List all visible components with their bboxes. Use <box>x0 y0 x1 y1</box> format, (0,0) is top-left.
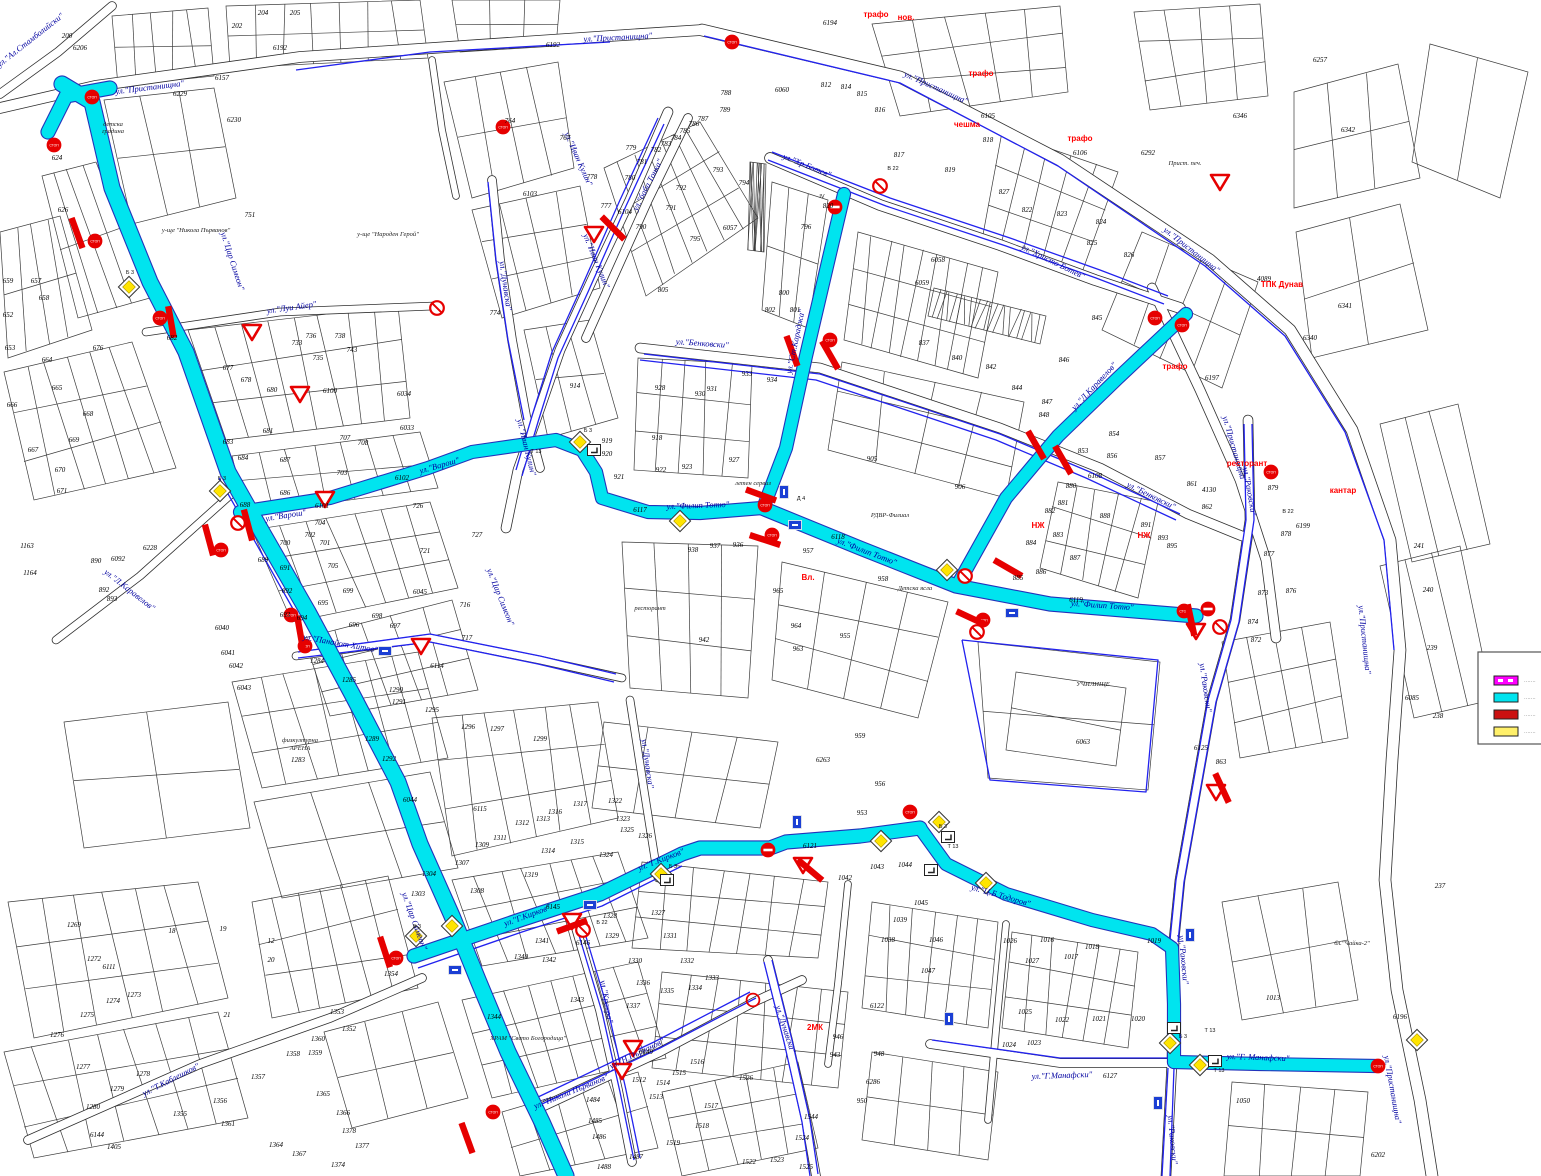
parcel-number-label: 6145 <box>546 903 561 911</box>
parcel-number-label: 1488 <box>597 1163 612 1171</box>
parcel-line <box>715 1080 738 1165</box>
red-annotation-label: чешма <box>954 120 981 129</box>
parcel-number-label: 1272 <box>87 955 102 963</box>
parcel-number-label: 1332 <box>680 957 695 965</box>
parcel-number-label: 1307 <box>455 859 470 867</box>
parcel-line <box>1046 939 1052 1035</box>
parcel-line <box>272 898 300 1013</box>
parcel-number-label: 1013 <box>1266 994 1281 1002</box>
parcel-line <box>462 715 477 849</box>
parcel-number-label: 1047 <box>921 967 936 975</box>
parcel-line <box>983 711 1154 725</box>
parcel-number-label: 695 <box>318 599 329 607</box>
poi-label: АРЕНА <box>289 745 311 752</box>
red-annotation-label: трафо <box>863 10 888 19</box>
parcel-number-label: 872 <box>1251 636 1262 644</box>
parcel-number-label: 1027 <box>1025 957 1040 965</box>
route-casing <box>762 508 1196 616</box>
parcel-number-label: 1324 <box>599 851 614 859</box>
parcel-number-label: 653 <box>5 344 16 352</box>
parcel-line <box>654 543 662 691</box>
info-sign-marker <box>379 647 392 656</box>
parcel-number-label: 6119 <box>1069 596 1083 604</box>
parcel-number-label: 891 <box>1141 521 1152 529</box>
parcel-line <box>637 393 751 405</box>
parcel-number-label: 857 <box>1155 454 1166 462</box>
parcel-number-label: 1290 <box>389 686 404 694</box>
parcel-number-label: 6341 <box>1338 302 1352 310</box>
sign-code-label: Т 13 <box>1204 1028 1215 1034</box>
parcel-number-label: 886 <box>1036 568 1047 576</box>
parcel-number-label: 6122 <box>870 1002 885 1010</box>
parcel-number-label: 6194 <box>823 19 838 27</box>
parcel-number-label: 948 <box>874 1050 885 1058</box>
red-annotation-label: 2МК <box>807 1023 823 1032</box>
parcel-number-label: 918 <box>652 434 663 442</box>
parcel-line <box>67 357 105 484</box>
parcel-line <box>779 605 938 637</box>
parcel-number-label: 6192 <box>273 44 288 52</box>
parcel-number-label: 1516 <box>690 1058 705 1066</box>
parcel-number-label: 705 <box>328 562 339 570</box>
info-sign-marker <box>584 901 597 910</box>
parcel-number-label: 18 <box>169 927 177 935</box>
parcel-line <box>993 305 1004 333</box>
parcel-number-label: 1358 <box>286 1050 301 1058</box>
parcel-number-label: 6101 <box>315 502 329 510</box>
parcel-number-label: 937 <box>710 542 721 550</box>
parcel-number-label: 1336 <box>636 979 651 987</box>
parcel-line <box>687 868 694 951</box>
parcel-number-label: 6111 <box>103 963 116 971</box>
parcel-number-label: 1523 <box>770 1156 785 1164</box>
parcel-line <box>963 268 983 374</box>
parcel-number-label: 1322 <box>608 797 623 805</box>
parcel-line <box>1008 308 1010 336</box>
parcel-number-label: 874 <box>1248 618 1259 626</box>
city-map-canvas[interactable]: СТОПСТОПСТОПСТОПСТОПСТОПСТОПСТОПСТОПСТОП… <box>0 0 1541 1176</box>
parcel-number-label: 677 <box>223 364 234 372</box>
parcel-number-label: 698 <box>372 612 383 620</box>
map-viewport[interactable]: СТОПСТОПСТОПСТОПСТОПСТОПСТОПСТОПСТОПСТОП… <box>0 0 1541 1176</box>
parcel-number-label: 6121 <box>803 842 817 850</box>
parcel-number-label: 6125 <box>1194 744 1209 752</box>
parcel-number-label: 1334 <box>688 984 703 992</box>
parcel-number-label: 890 <box>91 557 102 565</box>
parcel-number-label: 681 <box>263 427 274 435</box>
info-sign-marker <box>793 816 802 829</box>
parcel-number-label: 687 <box>280 456 291 464</box>
parcel-number-label: 1024 <box>1002 1041 1017 1049</box>
parcel-number-label: 1331 <box>663 932 677 940</box>
poi-label: у-ще "Народен Герой" <box>356 231 419 238</box>
parcel-number-label: 239 <box>1427 644 1438 652</box>
red-annotation-label: НЖ <box>1137 531 1151 540</box>
parcel-number-label: 6346 <box>1233 112 1248 120</box>
sign-code-label: Б 3 <box>1179 1034 1187 1040</box>
parcel-number-label: 6041 <box>221 649 235 657</box>
parcel-line <box>228 30 424 36</box>
parcel-number-label: 736 <box>306 332 317 340</box>
traffic-markers: СТОПСТОПСТОПСТОПСТОПСТОПСТОПСТОПСТОПСТОП… <box>47 35 1428 1155</box>
svg-text:СТОП: СТОП <box>488 1110 498 1114</box>
parcel-line <box>1230 6 1238 100</box>
info-sign-marker <box>945 1013 954 1026</box>
parcel-line <box>975 301 988 329</box>
sign-code-label: Б 3 <box>669 864 677 870</box>
poi-label: ХРАМ "Свето Богородица" <box>489 1035 566 1042</box>
parcel-line <box>688 544 691 693</box>
sign-code-label: В 22 <box>1282 509 1293 515</box>
poi-label: Детска ясла <box>897 585 932 592</box>
parcel-number-label: 6192 <box>546 41 561 49</box>
parcel-number-label: 876 <box>1286 587 1297 595</box>
parcel-number-label: 862 <box>1202 503 1213 511</box>
stop-sign-marker: СТОП <box>88 234 103 249</box>
parcel-number-label: 1050 <box>1236 1097 1251 1105</box>
parcel-number-label: 743 <box>347 346 358 354</box>
parcel-number-label: 684 <box>238 454 249 462</box>
parcel-number-label: 824 <box>1096 218 1107 226</box>
parcel-number-label: 1341 <box>535 937 549 945</box>
parcel-number-label: 6340 <box>1303 334 1318 342</box>
poi-label: РДВР-Филиал <box>870 512 909 519</box>
stop-sign-marker: СТОП <box>1148 311 1163 326</box>
parcel-line <box>767 246 818 264</box>
parcel-number-label: 6034 <box>397 390 412 398</box>
svg-text:СТОП: СТОП <box>49 143 59 147</box>
parcel-line <box>74 769 239 780</box>
parcel-number-label: 701 <box>320 539 331 547</box>
parcel-number-label: 1299 <box>533 735 548 743</box>
parcel-line <box>1009 309 1022 337</box>
parcel-number-label: 6085 <box>1405 694 1420 702</box>
parcel-number-label: 958 <box>878 575 889 583</box>
parcel-number-label: 6105 <box>981 112 996 120</box>
parcel-number-label: 786 <box>689 120 700 128</box>
parcel-number-label: 881 <box>1058 499 1069 507</box>
parcel-number-label: 1325 <box>620 826 635 834</box>
yield-sign-marker <box>1211 175 1229 190</box>
parcel-number-label: 959 <box>855 732 866 740</box>
parcel-number-label: 707 <box>340 434 351 442</box>
poi-label: детска <box>103 121 123 128</box>
parcel-line <box>1325 1090 1335 1176</box>
parcel-number-label: 848 <box>1039 411 1050 419</box>
direction-sign-marker <box>925 865 938 876</box>
parcel-number-label: 20 <box>268 956 276 964</box>
poi-label: летен сервиз <box>734 480 771 487</box>
parcel-line <box>1259 1085 1264 1176</box>
parcel-line <box>715 737 737 823</box>
yield-sign-marker <box>243 325 261 340</box>
parcel-line <box>69 1041 92 1147</box>
red-annotation-label: НЖ <box>1031 521 1045 530</box>
parcel-number-label: 1525 <box>799 1163 814 1171</box>
parcel-line <box>1247 637 1270 753</box>
parcel-number-label: 1328 <box>603 912 618 920</box>
parcel-number-label: 682 <box>167 334 178 342</box>
red-annotation-label: трафо <box>968 69 993 78</box>
parcel-block-outline <box>872 6 1068 116</box>
parcel-number-label: 837 <box>919 339 930 347</box>
street-name-label: ул."Ал.Стамболийски" <box>0 10 66 69</box>
parcel-number-label: 6104 <box>618 208 633 216</box>
poi-label: УЧИЛИЩЕ <box>1076 681 1109 688</box>
parcel-number-label: 6286 <box>866 1078 881 1086</box>
street-name-label: ул."Никола Първанов" <box>531 1072 610 1112</box>
parcel-number-label: 669 <box>69 436 80 444</box>
parcel-number-label: 1374 <box>331 1161 346 1169</box>
no-stopping-sign-marker <box>1213 620 1227 634</box>
parcel-number-label: 781 <box>637 158 648 166</box>
parcel-number-label: 885 <box>1013 574 1024 582</box>
svg-text:СТОП: СТОП <box>825 338 835 342</box>
parcel-line <box>811 989 821 1085</box>
info-sign-marker <box>1154 1097 1163 1110</box>
parcel-line <box>132 14 136 84</box>
parcel-number-label: 895 <box>1167 542 1178 550</box>
parcel-number-label: 6263 <box>816 756 831 764</box>
parcel-number-label: 6114 <box>430 662 444 670</box>
parcel-number-label: 6092 <box>111 555 126 563</box>
parcel-number-label: 1315 <box>570 838 585 846</box>
parcel-line <box>261 678 285 784</box>
legend-swatch <box>1494 727 1518 736</box>
parcel-line <box>807 572 824 690</box>
parcel-number-label: 879 <box>1268 484 1279 492</box>
svg-text:СТОП: СТОП <box>498 125 508 129</box>
street-name-label: ул."Цар Симеон" <box>484 566 517 627</box>
parcel-number-label: 716 <box>460 601 471 609</box>
parcel-number-label: 21 <box>224 1011 231 1019</box>
poi-label: у-ще "Никола Първанов" <box>161 227 231 234</box>
parcel-number-label: 1279 <box>110 1085 125 1093</box>
parcel-number-label: 1312 <box>515 819 530 827</box>
parcel-line <box>25 963 218 989</box>
parcel-number-label: 847 <box>1042 398 1053 406</box>
parcel-number-label: 1284 <box>310 657 325 665</box>
parcel-number-label: 1273 <box>127 991 142 999</box>
parcel-number-label: 680 <box>267 386 278 394</box>
parcel-number-label: 1045 <box>914 899 929 907</box>
parcel-number-label: 787 <box>698 115 709 123</box>
parcel-number-label: 1291 <box>392 698 406 706</box>
svg-text:СТОП: СТОП <box>767 533 777 537</box>
parcel-line <box>439 744 605 760</box>
legend-item-label: ······· <box>1524 713 1536 719</box>
parcel-line <box>947 292 949 320</box>
parcel-number-label: 943 <box>830 1051 841 1059</box>
parcel-number-label: 1296 <box>461 723 476 731</box>
parcel-number-label: 1367 <box>292 1150 307 1158</box>
parcel-number-label: 1329 <box>605 932 620 940</box>
parcel-line <box>1228 1126 1364 1138</box>
parcel-number-label: 923 <box>682 463 693 471</box>
parcel-number-label: 1354 <box>384 970 399 978</box>
parcel-number-label: 6342 <box>1341 126 1356 134</box>
parcel-number-label: 733 <box>292 339 303 347</box>
parcel-number-label: 780 <box>625 174 636 182</box>
parcel-line <box>252 722 438 753</box>
parcel-line <box>1431 553 1467 706</box>
parcel-number-label: 1518 <box>695 1122 710 1130</box>
sign-code-label: Т 13 <box>947 844 958 850</box>
svg-text:СТОП: СТОП <box>1177 323 1187 327</box>
poi-label: градина <box>102 128 124 135</box>
parcel-number-label: 1020 <box>1131 1015 1146 1023</box>
sign-code-label: Б 3 <box>939 824 947 830</box>
parcel-line <box>949 294 957 322</box>
parcel-line <box>1429 411 1467 550</box>
parcel-number-label: 694 <box>297 614 308 622</box>
parcel-number-label: 697 <box>390 622 401 630</box>
parcel-number-label: 1366 <box>336 1109 351 1117</box>
parcel-number-label: 708 <box>358 439 369 447</box>
parcel-number-label: 200 <box>62 32 73 40</box>
parcel-number-label: 863 <box>1216 758 1227 766</box>
parcel-line <box>598 766 769 784</box>
parcel-line <box>1274 632 1296 748</box>
svg-text:СТОП: СТОП <box>87 95 97 99</box>
parcel-number-label: 887 <box>1070 554 1081 562</box>
parcel-number-label: 1333 <box>705 974 720 982</box>
parcel-number-label: 873 <box>1258 589 1269 597</box>
parcel-number-label: 819 <box>945 166 956 174</box>
parcel-block-outline <box>4 342 176 500</box>
red-annotation-label: трафо <box>1067 134 1092 143</box>
parcel-number-label: 888 <box>1100 512 1111 520</box>
parcel-line <box>118 147 225 159</box>
street-name-label: ул."Г.Манафски" <box>1030 1069 1092 1081</box>
route-segment <box>764 194 844 506</box>
parcel-line <box>338 1052 453 1077</box>
parcel-number-label: 1297 <box>490 725 505 733</box>
parcel-number-label: 1512 <box>632 1076 647 1084</box>
sign-code-label: Т 13 <box>1213 1068 1224 1074</box>
parcel-number-label: 6045 <box>413 588 428 596</box>
parcel-number-label: 704 <box>315 519 326 527</box>
poi-label: ресторант <box>633 605 666 612</box>
parcel-line <box>678 360 685 473</box>
route-casing <box>958 314 1186 584</box>
parcel-number-label: 965 <box>773 587 784 595</box>
parcel-number-label: 1042 <box>838 874 853 882</box>
parcel-number-label: 1274 <box>106 997 121 1005</box>
sign-code-label: Б 3 <box>584 428 592 434</box>
parcel-line <box>625 588 755 599</box>
parcel-number-label: 1304 <box>422 870 437 878</box>
parcel-number-label: 942 <box>699 636 710 644</box>
street-name-label: ул."Пристанищна" <box>1356 604 1373 675</box>
stop-sign-marker: СТОП <box>1175 318 1190 333</box>
parcel-number-label: 1337 <box>626 1002 641 1010</box>
blue-guide-line <box>962 640 1158 792</box>
parcel-number-label: 1313 <box>536 815 551 823</box>
parcel-number-label: 853 <box>1078 447 1089 455</box>
parcel-number-label: 774 <box>490 309 501 317</box>
svg-text:СТОП: СТОП <box>1266 470 1276 474</box>
parcel-line <box>213 381 406 402</box>
no-stopping-sign-marker <box>873 179 887 193</box>
parcel-number-label: 1517 <box>704 1102 719 1110</box>
info-sign-marker <box>780 486 789 499</box>
parcel-number-label: 1163 <box>20 542 34 550</box>
parcel-number-label: 795 <box>690 235 701 243</box>
parcel-number-label: 6059 <box>915 279 930 287</box>
parcel-number-label: 1323 <box>616 815 631 823</box>
parcel-number-label: 884 <box>1026 539 1037 547</box>
direction-sign-marker <box>942 832 955 843</box>
yield-sign-marker <box>291 387 309 402</box>
parcel-number-label: 861 <box>1187 480 1198 488</box>
parcel-number-label: 1524 <box>795 1134 810 1142</box>
parcel-number-label: 6057 <box>723 224 738 232</box>
parcel-line <box>179 92 199 207</box>
parcel-number-label: 805 <box>658 286 669 294</box>
road-surface <box>28 978 422 1140</box>
parcel-number-label: 782 <box>651 146 662 154</box>
parcel-number-label: 784 <box>671 134 682 142</box>
parcel-number-label: 1361 <box>221 1120 235 1128</box>
parcel-number-label: 1026 <box>1003 937 1018 945</box>
sign-code-label: IV <box>819 194 825 200</box>
parcel-line <box>844 582 867 699</box>
svg-text:СТОП: СТОП <box>90 239 100 243</box>
parcel-number-label: 906 <box>955 483 966 491</box>
parcel-number-label: 700 <box>280 539 291 547</box>
parcel-number-label: 820 <box>823 202 834 210</box>
road-surface <box>768 960 816 1176</box>
parcel-number-label: 777 <box>601 202 612 210</box>
parcel-number-label: 683 <box>223 438 234 446</box>
parcel-line <box>944 915 957 1021</box>
parcel-line <box>1083 490 1095 580</box>
parcel-number-label: 657 <box>31 277 42 285</box>
parcel-number-label: 1044 <box>898 861 913 869</box>
parcel-line <box>556 192 572 296</box>
parcel-number-label: 963 <box>793 645 804 653</box>
parcel-line <box>265 532 439 559</box>
parcel-number-label: 1022 <box>1055 1016 1070 1024</box>
route-segment <box>762 508 1196 616</box>
parcel-number-label: 1544 <box>804 1113 819 1121</box>
parcel-number-label: 6292 <box>1141 149 1156 157</box>
parcel-block-outline <box>432 702 618 856</box>
parcel-number-label: 1405 <box>107 1143 122 1151</box>
parcel-line <box>402 1012 427 1108</box>
parcel-number-label: 1017 <box>1064 953 1079 961</box>
road-closure-bar-marker <box>377 936 393 968</box>
parcel-number-label: 1269 <box>67 921 82 929</box>
parcel-line <box>1405 559 1442 712</box>
parcel-number-label: 1335 <box>660 987 675 995</box>
parcel-number-label: 721 <box>420 547 431 555</box>
parcel-line <box>1232 940 1348 962</box>
parcel-line <box>340 885 371 998</box>
parcel-number-label: 796 <box>801 223 812 231</box>
parcel-number-label: 1043 <box>870 863 885 871</box>
sign-code-label: Д 4 <box>797 496 805 502</box>
parcel-number-label: 922 <box>656 466 667 474</box>
parcel-line <box>627 636 751 651</box>
parcel-number-label: 626 <box>58 206 69 214</box>
parcel-number-label: 1295 <box>425 706 440 714</box>
parcel-line <box>737 873 751 953</box>
parcel-line <box>871 241 892 349</box>
parcel-number-label: 826 <box>1124 251 1135 259</box>
parcel-number-label: 205 <box>290 9 301 17</box>
